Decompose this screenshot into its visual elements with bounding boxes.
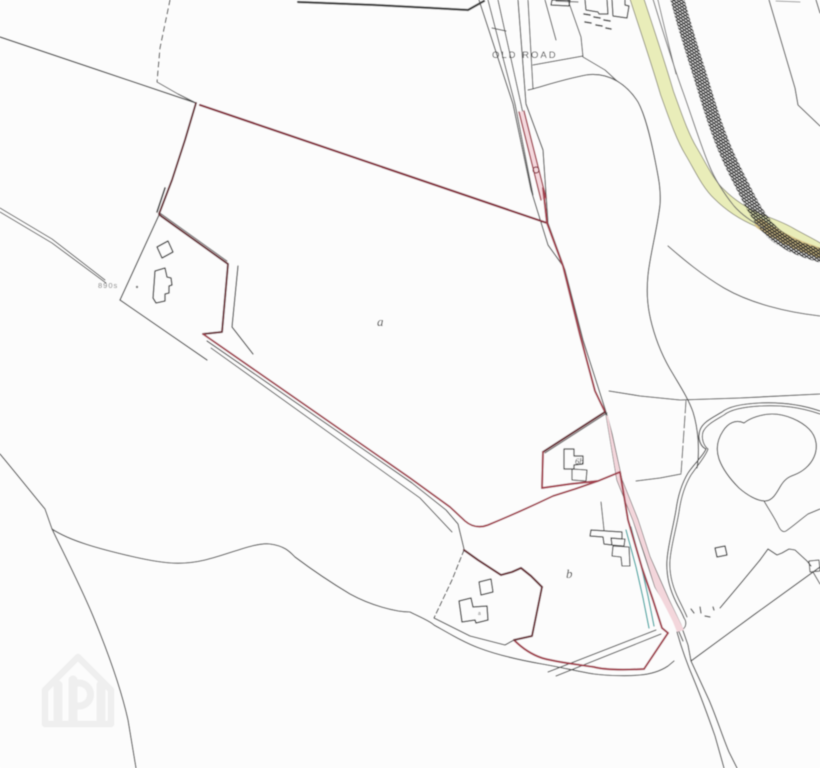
svg-text:a: a	[478, 611, 481, 617]
svg-text:6b: 6b	[575, 456, 584, 466]
svg-text:890s: 890s	[98, 281, 118, 290]
svg-text:OLD ROAD: OLD ROAD	[492, 50, 558, 61]
svg-text:b: b	[566, 566, 573, 581]
svg-text:a: a	[377, 314, 384, 329]
